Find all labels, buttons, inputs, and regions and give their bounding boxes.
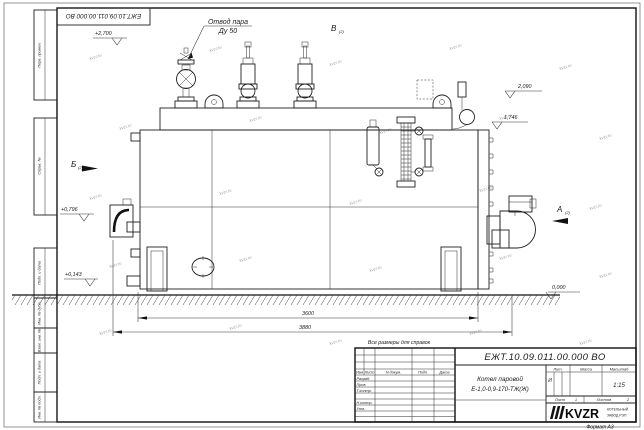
elevation-0796: +0,796 [60, 207, 94, 221]
svg-text:3600: 3600 [302, 311, 314, 317]
col-podp: Подп. [418, 371, 428, 375]
svg-text:+0,796: +0,796 [61, 207, 78, 213]
view-a-letter: А [556, 205, 562, 214]
skid-right [441, 247, 461, 291]
margin-fields: Перв. примен. Справ. № Подп. и дата Инв.… [34, 10, 57, 422]
reference-note: Все размеры для справок [368, 340, 431, 346]
sheets-label: Листов [596, 397, 612, 402]
company-logo: KVZR КОТЕЛЬНЫЙ ЗАВОД РЭП [550, 406, 629, 421]
view-label-a: А (2) [552, 205, 571, 224]
svg-text:Инв. № подл.: Инв. № подл. [38, 395, 42, 419]
svg-text:Справ. №: Справ. № [38, 157, 42, 174]
product-name-line1: Котел паровой [477, 375, 523, 383]
safety-valve-2 [294, 42, 316, 108]
view-b-letter: Б [71, 160, 76, 169]
lifting-lug-left [205, 95, 223, 108]
margin-field-inv-podl: Инв. № подл. [34, 392, 57, 422]
col-izm: Изм [356, 371, 363, 375]
lit-header: Лит. [552, 367, 562, 372]
elevation-2700: +2,700 [93, 31, 127, 45]
margin-field-podp-data-2: Подп. и дата [34, 353, 57, 392]
svg-text:+0,143: +0,143 [65, 272, 82, 278]
svg-text:Взам. инв. №: Взам. инв. № [38, 329, 42, 352]
svg-text:2,090: 2,090 [517, 84, 532, 90]
manhole [192, 256, 214, 278]
dimension-3880: 3880 [113, 240, 512, 336]
view-v-sheet-ref: (2) [339, 29, 345, 34]
doc-number: ЕЖТ.10.09.011.00.000 ВО [484, 352, 605, 363]
sheet-label: Лист [554, 397, 566, 402]
elevation-2090: 2,090 [505, 84, 542, 98]
svg-text:0,000: 0,000 [552, 285, 566, 291]
steam-outlet-callout: Отвод пара Ду 50 [188, 18, 252, 60]
col-list: Лист [364, 371, 375, 375]
margin-field-vzam-inv: Взам. инв. № [34, 328, 57, 353]
view-a-sheet-ref: (2) [565, 210, 571, 215]
boiler-drawing-canvas: kvzr.ru ЕЖТ.10.09.011.00.000 ВО Перв. пр… [0, 0, 644, 430]
row-tkontr: Т.контр. [357, 389, 372, 393]
sheet-value: 1 [575, 397, 577, 402]
logo-caption-line1: КОТЕЛЬНЫЙ [607, 408, 629, 412]
logo-wordmark: KVZR [565, 407, 599, 421]
svg-text:1,746: 1,746 [504, 115, 518, 121]
scale-value: 1:15 [613, 383, 625, 389]
svg-text:+2,700: +2,700 [95, 31, 112, 37]
row-razrab: Разраб. [357, 377, 371, 381]
front-plate [478, 130, 493, 289]
title-block: Изм Лист N докум. Подп. Дата Разраб. Про… [355, 348, 636, 422]
steam-outlet-valve [175, 48, 197, 108]
row-prov: Пров. [357, 383, 367, 387]
vent-elbow [453, 82, 475, 129]
logo-caption-line2: ЗАВОД РЭП [607, 414, 627, 418]
water-level-gauge [367, 117, 433, 187]
view-label-v: В (2) [331, 24, 345, 34]
row-nkontr: Н.контр. [357, 401, 373, 405]
svg-text:Перв. примен.: Перв. примен. [38, 42, 42, 67]
dashed-opening [417, 80, 433, 99]
top-stamp-doc-number: ЕЖТ.10.09.011.00.000 ВО [66, 12, 141, 19]
lit-value: И [548, 378, 552, 384]
scale-header: Масштаб [610, 367, 629, 372]
elevation-1746: 1,746 [492, 115, 528, 129]
svg-text:3880: 3880 [299, 325, 311, 331]
gauge-column [397, 117, 433, 187]
col-ndokum: N докум. [386, 371, 401, 375]
format-label: Формат А3 [586, 425, 614, 430]
svg-text:Подп. и дата: Подп. и дата [38, 361, 42, 385]
view-label-b: Б (2) [71, 160, 98, 172]
svg-text:Подп. и дата: Подп. и дата [38, 261, 42, 285]
steam-outlet-label: Отвод пара [208, 18, 248, 26]
product-name-line2: Е-1,0-0,9-170-ТЖ(Ж) [471, 387, 528, 393]
svg-text:В: В [331, 24, 337, 33]
skid-left [147, 247, 167, 291]
safety-valve-1 [237, 42, 259, 108]
sheet-frame: ЕЖТ.10.09.011.00.000 ВО [4, 3, 640, 427]
mass-header: Масса [580, 367, 593, 372]
steam-outlet-dn-label: Ду 50 [218, 28, 237, 35]
margin-field-sprav-no: Справ. № [34, 118, 57, 215]
burner [487, 196, 536, 248]
lifting-lug-right [433, 95, 451, 108]
col-data: Дата [438, 371, 449, 375]
margin-field-perv-primen: Перв. примен. [34, 10, 57, 100]
logo-coil-icon [550, 406, 565, 419]
sheets-value: 2 [626, 397, 630, 402]
elevation-0143: +0,143 [64, 272, 98, 286]
drawing-sheet: kvzr.ru ЕЖТ.10.09.011.00.000 ВО Перв. пр… [0, 0, 644, 430]
margin-field-podp-data-1: Подп. и дата [34, 248, 57, 298]
rear-elbow-box [110, 199, 133, 237]
row-utv: Утв. [357, 407, 366, 411]
